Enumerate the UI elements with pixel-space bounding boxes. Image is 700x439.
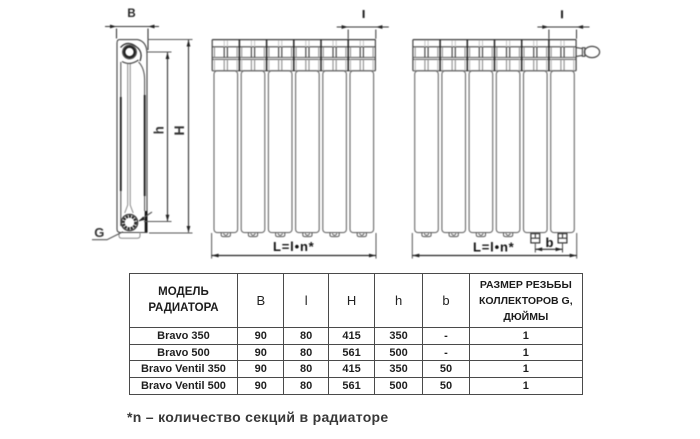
svg-text:B: B [127,8,135,20]
svg-text:b: b [546,235,554,250]
svg-text:h: h [151,126,166,134]
svg-text:H: H [171,125,187,135]
svg-text:L=l•n*: L=l•n* [473,240,515,255]
svg-text:G: G [94,225,104,240]
svg-text:L=l•n*: L=l•n* [273,239,315,254]
